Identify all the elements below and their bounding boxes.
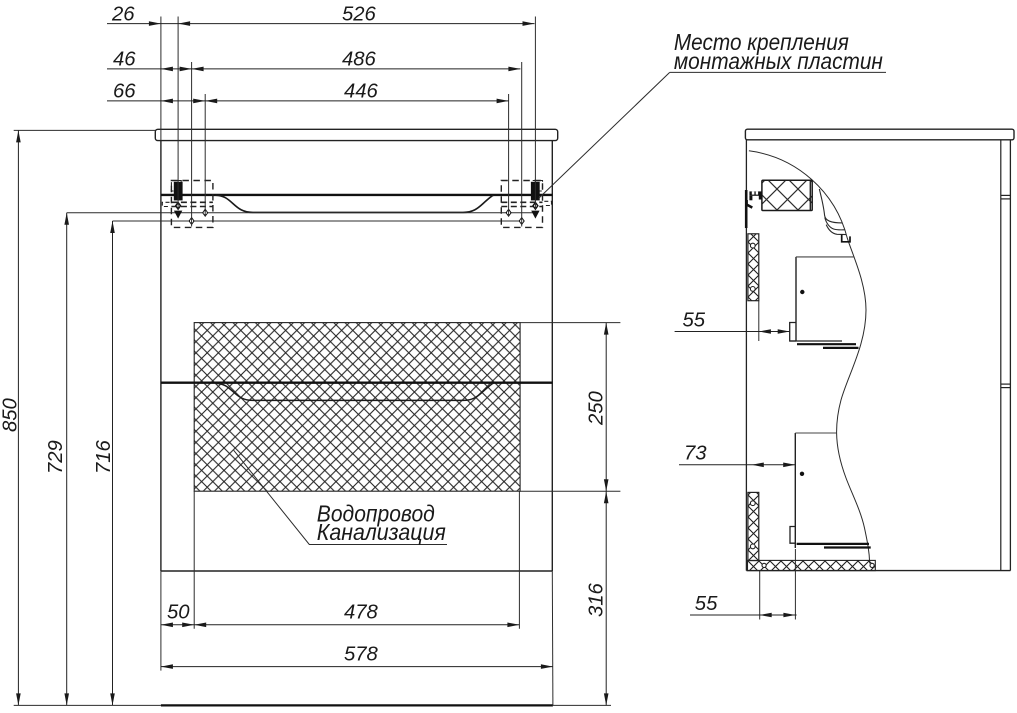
svg-text:729: 729 [45, 440, 67, 474]
svg-text:250: 250 [586, 390, 608, 426]
svg-text:486: 486 [342, 49, 377, 71]
svg-text:55: 55 [683, 309, 706, 331]
svg-text:монтажных пластин: монтажных пластин [674, 48, 883, 74]
svg-text:46: 46 [113, 49, 136, 71]
svg-text:55: 55 [695, 593, 718, 615]
svg-text:Канализация: Канализация [317, 519, 446, 545]
svg-text:716: 716 [93, 439, 115, 474]
svg-text:26: 26 [111, 4, 135, 26]
svg-text:850: 850 [0, 397, 22, 432]
svg-text:446: 446 [344, 81, 379, 103]
svg-text:66: 66 [113, 81, 136, 103]
svg-text:578: 578 [344, 643, 379, 665]
svg-text:50: 50 [167, 602, 190, 624]
svg-text:316: 316 [586, 582, 608, 617]
svg-text:73: 73 [684, 443, 707, 465]
svg-text:526: 526 [342, 4, 377, 26]
svg-text:478: 478 [344, 602, 379, 624]
